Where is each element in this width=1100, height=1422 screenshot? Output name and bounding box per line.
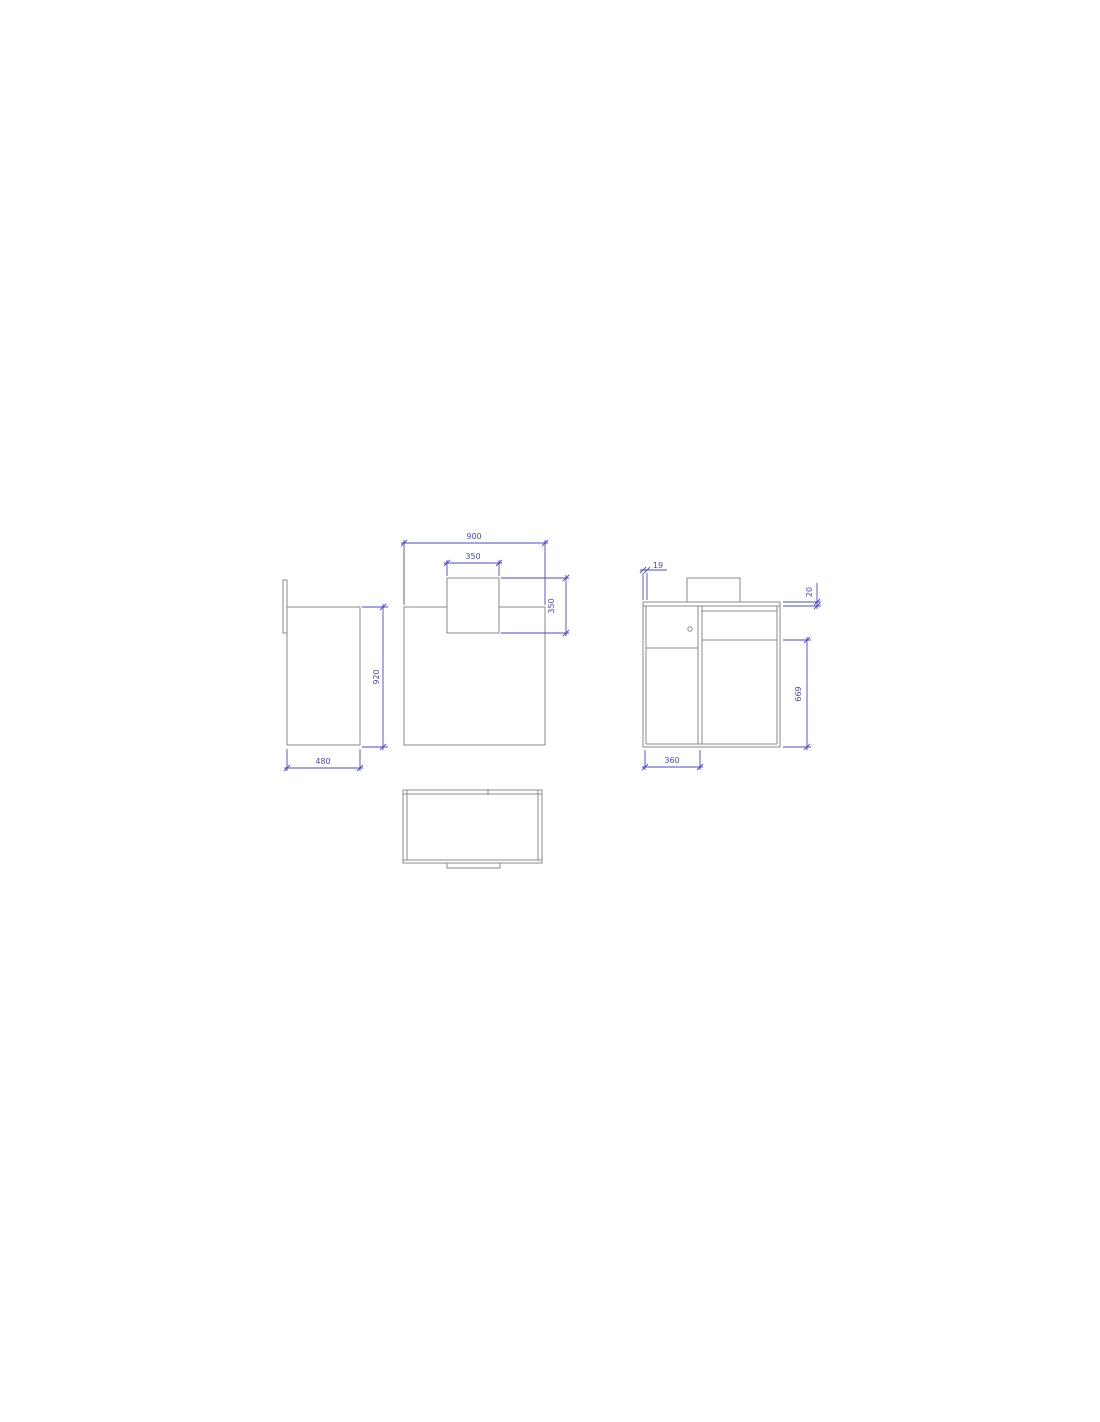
- dimension-height-920: 920: [362, 604, 388, 750]
- side-view: 920 480: [283, 580, 388, 771]
- dim-label-panel-height: 350: [547, 598, 556, 613]
- panel-protrusion-top: [447, 863, 500, 868]
- back-view: 19 20 669 360: [640, 561, 821, 770]
- dim-label-width: 900: [466, 532, 481, 541]
- cabinet-body-back: [643, 606, 780, 747]
- drawing-svg: 920 480 900 350: [0, 0, 1100, 1422]
- raised-panel-back: [687, 578, 740, 602]
- front-view: 900 350 350: [401, 532, 569, 745]
- dim-label-top-thickness: 20: [805, 587, 814, 597]
- top-view: [403, 790, 542, 868]
- dim-label-height: 920: [372, 669, 381, 684]
- raised-panel-edge: [283, 580, 287, 633]
- dimension-drawer-width-360: 360: [642, 750, 703, 770]
- dim-label-panel-thickness: 19: [653, 561, 663, 570]
- cabinet-body-side: [287, 607, 360, 745]
- dimension-panel-width-350: 350: [444, 552, 502, 576]
- dim-label-door-height: 669: [794, 686, 803, 701]
- dim-label-panel-width: 350: [465, 552, 480, 561]
- dim-label-drawer-width: 360: [664, 756, 679, 765]
- dimension-top-thickness-20: 20: [783, 583, 821, 609]
- dimension-depth-480: 480: [284, 749, 363, 771]
- dimension-door-height-669: 669: [783, 637, 811, 750]
- dimension-panel-thickness-19: 19: [640, 561, 667, 600]
- raised-panel-front: [447, 578, 499, 633]
- dim-label-depth: 480: [315, 757, 330, 766]
- countertop-edge: [643, 602, 780, 606]
- technical-drawing-canvas: 920 480 900 350: [0, 0, 1100, 1422]
- cabinet-body-top: [403, 790, 542, 863]
